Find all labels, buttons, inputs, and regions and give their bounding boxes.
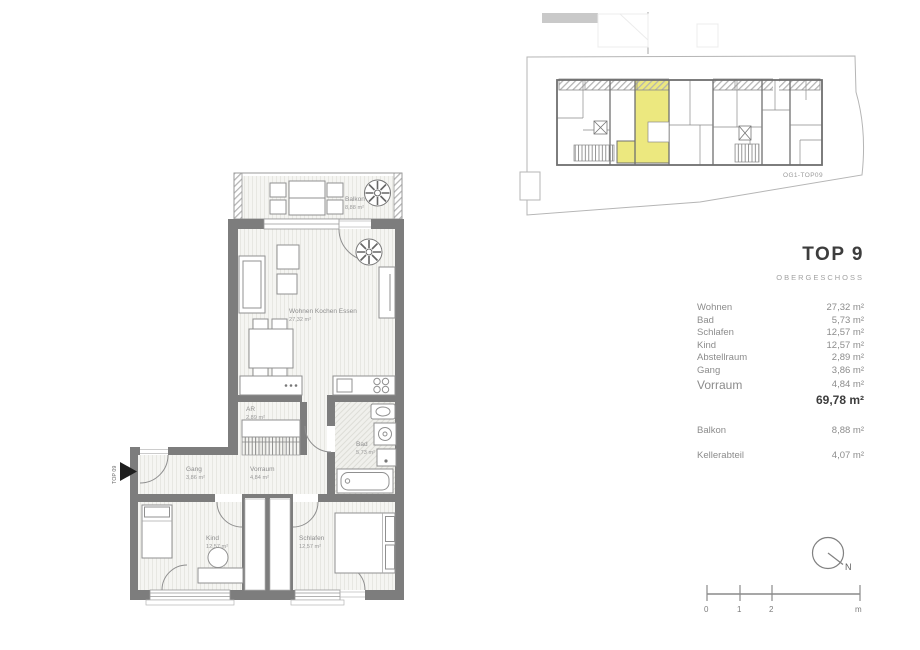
dining-table: [249, 329, 293, 368]
room-name: Kind: [697, 340, 716, 353]
scale-tick-2: 2: [769, 605, 774, 614]
anteroom-area: 4,84 m²: [250, 475, 269, 481]
wardrobe-shelf: [242, 420, 300, 437]
hall-area: 3,86 m²: [186, 475, 205, 481]
area-row: Abstellraum 2,89 m²: [697, 352, 864, 365]
cabinet: [379, 267, 395, 318]
tree-icon: [356, 239, 382, 265]
total-area-row: 69,78 m²: [697, 392, 864, 409]
area-row: Schlafen 12,57 m²: [697, 327, 864, 340]
kitchen-sink: [337, 379, 352, 392]
scale-tick-0: 0: [704, 605, 709, 614]
living-label: Wohnen Kochen Essen: [289, 308, 357, 315]
bath-sink: [377, 449, 396, 466]
room-name: Balkon: [697, 425, 726, 438]
chair: [270, 200, 286, 214]
main-floor-plan: TOP 09 Balkon 8,88 m² Wohnen Kochen Esse…: [112, 173, 404, 605]
living-area: 27,32 m²: [289, 317, 311, 323]
balcony-label: Balkon: [345, 196, 365, 203]
kid-room-window: [150, 590, 230, 600]
room-area: 12,57 m²: [827, 327, 865, 340]
armchair: [277, 274, 297, 294]
balcony-area: 8,88 m²: [345, 205, 364, 211]
bathtub-inner: [341, 473, 389, 491]
total-area: 69,78 m²: [816, 392, 864, 409]
room-name: Kellerabteil: [697, 450, 744, 463]
chair: [327, 200, 343, 214]
stairs-icon: [735, 144, 759, 162]
insulation-hatch: [234, 173, 242, 219]
scale-tick-1: 1: [737, 605, 742, 614]
area-row: Kellerabteil 4,07 m²: [697, 450, 864, 463]
stairs-icon: [574, 145, 614, 161]
room-name: Wohnen: [697, 302, 732, 315]
washing-machine: [374, 423, 396, 445]
kid-room-area: 12,57 m²: [206, 544, 228, 550]
scale-tick-m: m: [855, 605, 862, 614]
overview-label: OG1-TOP09: [783, 172, 823, 179]
kid-room-label: Kind: [206, 535, 219, 542]
kitchen-counter: [240, 376, 302, 395]
roof-outline: [598, 14, 648, 47]
site-notch: [520, 172, 540, 200]
area-row: Gang 3,86 m²: [697, 365, 864, 378]
room-name: Vorraum: [697, 378, 742, 392]
insulation-hatch: [394, 173, 402, 219]
room-name: Abstellraum: [697, 352, 747, 365]
wardrobe-hangers: [242, 437, 300, 455]
area-row: Vorraum 4,84 m²: [697, 378, 864, 392]
toilet-bowl: [376, 407, 390, 416]
chair: [327, 183, 343, 197]
room-area: 3,86 m²: [832, 365, 864, 378]
window-sill: [146, 600, 234, 605]
pillow: [145, 507, 170, 517]
desk: [198, 568, 243, 583]
room-area: 27,32 m²: [827, 302, 865, 315]
window-sill: [291, 600, 344, 605]
passage-floor: [307, 402, 327, 455]
area-table: Wohnen 27,32 m² Bad 5,73 m² Schlafen 12,…: [697, 302, 864, 463]
entrance-label: TOP 09: [112, 466, 118, 484]
room-area: 4,84 m²: [832, 378, 864, 392]
info-panel: TOP 9 OBERGESCHOSS Wohnen 27,32 m² Bad 5…: [697, 244, 864, 463]
desk-chair: [208, 548, 228, 568]
pillow: [386, 517, 395, 542]
chair: [272, 319, 287, 329]
area-row: Wohnen 27,32 m²: [697, 302, 864, 315]
room-area: 8,88 m²: [832, 425, 864, 438]
overview-plan: OG1-TOP09: [520, 12, 864, 215]
balcony-table: [289, 198, 325, 215]
storage-label: AR: [246, 406, 255, 413]
room-area: 4,07 m²: [832, 450, 864, 463]
chair: [270, 183, 286, 197]
floor-subtitle: OBERGESCHOSS: [697, 273, 864, 282]
room-name: Bad: [697, 315, 714, 328]
armchair: [277, 245, 299, 269]
room-name: Schlafen: [697, 327, 734, 340]
site-bar: [542, 13, 598, 23]
pillow: [386, 545, 395, 569]
area-row: Kind 12,57 m²: [697, 340, 864, 353]
chair: [253, 319, 268, 329]
unit-title: TOP 9: [697, 244, 864, 266]
room-area: 2,89 m²: [832, 352, 864, 365]
room-area: 5,73 m²: [832, 315, 864, 328]
anteroom-label: Vorraum: [250, 466, 275, 473]
bedroom-label: Schlafen: [299, 535, 325, 542]
tree-icon: [365, 180, 391, 206]
north-arrow-icon: N: [813, 538, 852, 573]
area-row: Bad 5,73 m²: [697, 315, 864, 328]
roof-outline: [697, 24, 718, 47]
room-area: 12,57 m²: [827, 340, 865, 353]
room-name: Gang: [697, 365, 720, 378]
storage-area: 2,89 m²: [246, 415, 265, 421]
north-label: N: [845, 562, 852, 572]
hall-label: Gang: [186, 466, 202, 473]
sofa-seat: [243, 261, 261, 308]
bedroom-area: 12,57 m²: [299, 544, 321, 550]
bath-label: Bad: [356, 441, 368, 448]
balcony-table: [289, 181, 325, 198]
bedroom-window: [295, 590, 340, 600]
bath-area: 5,73 m²: [356, 450, 375, 456]
scale-bar: 0 1 2 m: [704, 585, 862, 614]
area-row: Balkon 8,88 m²: [697, 425, 864, 438]
